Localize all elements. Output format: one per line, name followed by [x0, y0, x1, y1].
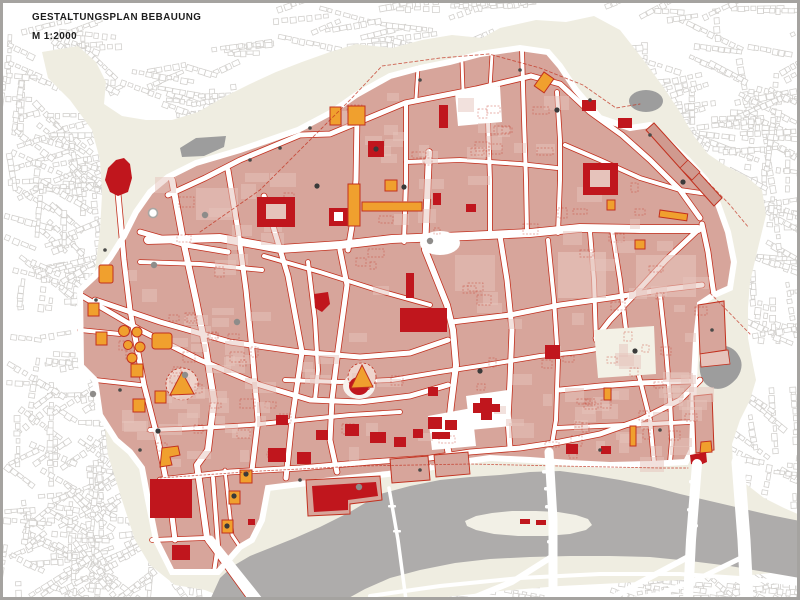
svg-text:GESTALTUNGSPLAN BEBAUUNG: GESTALTUNGSPLAN BEBAUUNG — [32, 12, 201, 23]
svg-text:M 1:2000: M 1:2000 — [32, 31, 77, 42]
